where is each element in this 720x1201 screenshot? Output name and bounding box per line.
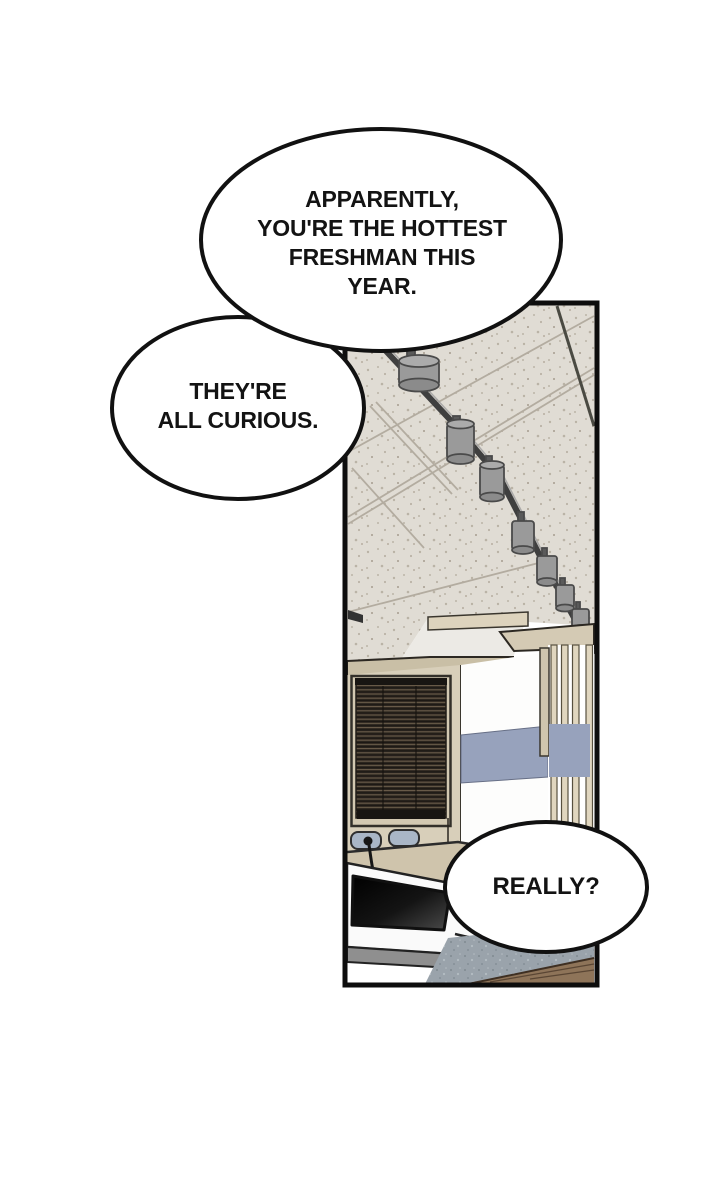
wall-stripe-blue — [461, 726, 548, 783]
speech-bubble-3-text: REALLY? — [426, 872, 666, 902]
bubble-text-line: YEAR. — [232, 272, 532, 301]
comic-page: APPARENTLY, YOU'RE THE HOTTEST FRESHMAN … — [0, 0, 720, 1201]
track-light — [480, 456, 504, 502]
blinds-bottom-bar — [357, 810, 445, 819]
slat-stripe-blue — [549, 724, 590, 777]
microphone-head — [364, 837, 373, 846]
chair-back — [389, 830, 419, 846]
bubble-text-line: REALLY? — [426, 872, 666, 902]
bubble-text-line: THEY'RE — [88, 377, 388, 406]
speech-bubble-2-text: THEY'RE ALL CURIOUS. — [88, 377, 388, 435]
bubble-text-line: FRESHMAN THIS — [232, 243, 532, 272]
comic-artwork — [0, 0, 720, 1201]
window-blinds — [356, 682, 446, 818]
blinds-header-bar — [355, 678, 447, 685]
bubble-text-line: APPARENTLY, — [232, 185, 532, 214]
track-light — [447, 416, 474, 464]
slat-side-strip — [540, 648, 549, 756]
bubble-text-line: YOU'RE THE HOTTEST — [232, 214, 532, 243]
track-light — [399, 350, 439, 392]
bubble-text-line: ALL CURIOUS. — [88, 406, 388, 435]
speech-bubble-1-text: APPARENTLY, YOU'RE THE HOTTEST FRESHMAN … — [232, 185, 532, 301]
